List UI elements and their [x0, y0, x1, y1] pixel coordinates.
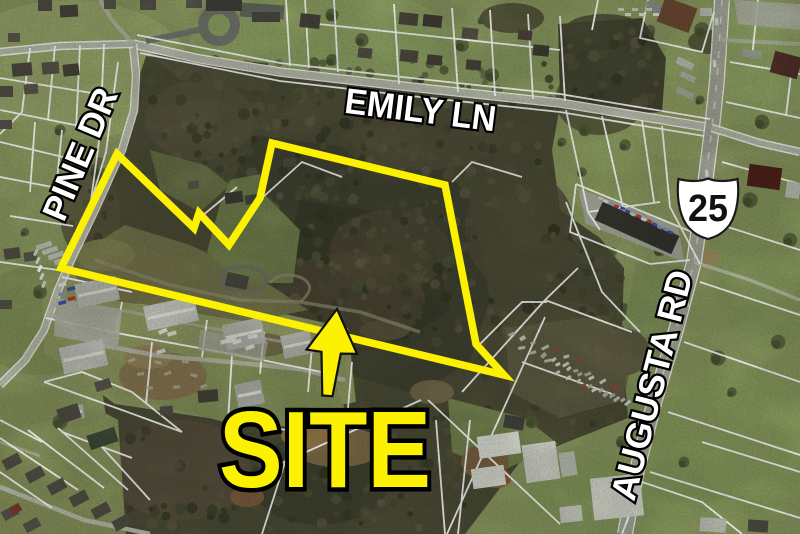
svg-text:SITE: SITE: [219, 389, 431, 511]
svg-text:25: 25: [688, 188, 728, 230]
